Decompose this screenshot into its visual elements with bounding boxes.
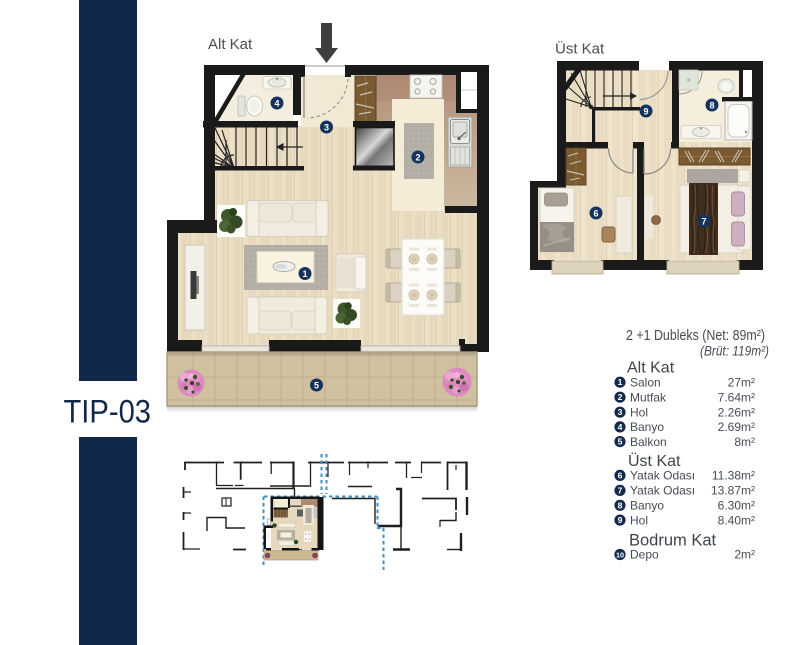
svg-text:27m²: 27m² [728,375,755,389]
svg-text:1: 1 [618,377,623,387]
svg-text:(Brüt: 119m²): (Brüt: 119m²) [700,344,769,359]
svg-text:Banyo: Banyo [630,420,664,434]
svg-text:Yatak Odası: Yatak Odası [630,469,695,483]
svg-text:Banyo: Banyo [630,499,664,513]
svg-text:2: 2 [618,392,623,402]
svg-text:Hol: Hol [630,513,648,527]
svg-text:Alt Kat: Alt Kat [208,36,253,53]
svg-text:11.38m²: 11.38m² [712,469,755,483]
svg-text:9: 9 [618,515,623,525]
svg-text:4: 4 [618,422,623,432]
svg-text:Üst Kat: Üst Kat [555,40,605,58]
svg-text:6: 6 [593,209,598,219]
svg-text:7: 7 [701,217,706,227]
svg-text:1: 1 [302,269,307,279]
svg-text:3: 3 [324,123,329,133]
svg-text:7: 7 [618,485,623,495]
svg-text:TIP-03: TIP-03 [64,394,152,430]
svg-text:Mutfak: Mutfak [630,390,667,404]
svg-text:8: 8 [618,500,623,510]
svg-text:4: 4 [274,99,279,109]
svg-text:2.26m²: 2.26m² [718,405,755,419]
svg-text:8m²: 8m² [734,435,755,449]
svg-text:9: 9 [643,107,648,117]
svg-text:10: 10 [616,550,624,559]
svg-text:2: 2 [415,153,420,163]
svg-text:13.87m²: 13.87m² [711,484,755,498]
svg-text:6.30m²: 6.30m² [718,499,755,513]
svg-text:5: 5 [314,381,319,391]
svg-text:Alt Kat: Alt Kat [627,360,675,377]
svg-text:2.69m²: 2.69m² [718,420,755,434]
svg-text:5: 5 [618,437,623,447]
svg-text:Üst Kat: Üst Kat [628,452,681,470]
svg-text:3: 3 [618,407,623,417]
svg-text:Yatak Odası: Yatak Odası [630,484,695,498]
svg-text:6: 6 [618,470,623,480]
svg-text:Hol: Hol [630,405,648,419]
svg-text:7.64m²: 7.64m² [718,390,755,404]
svg-text:2m²: 2m² [734,548,755,562]
svg-text:Depo: Depo [630,548,659,562]
svg-text:2 +1 Dubleks (Net: 89m²): 2 +1 Dubleks (Net: 89m²) [626,328,765,344]
svg-text:Salon: Salon [630,375,661,389]
svg-text:8: 8 [709,101,714,111]
svg-text:Balkon: Balkon [630,435,667,449]
svg-text:8.40m²: 8.40m² [718,513,755,527]
